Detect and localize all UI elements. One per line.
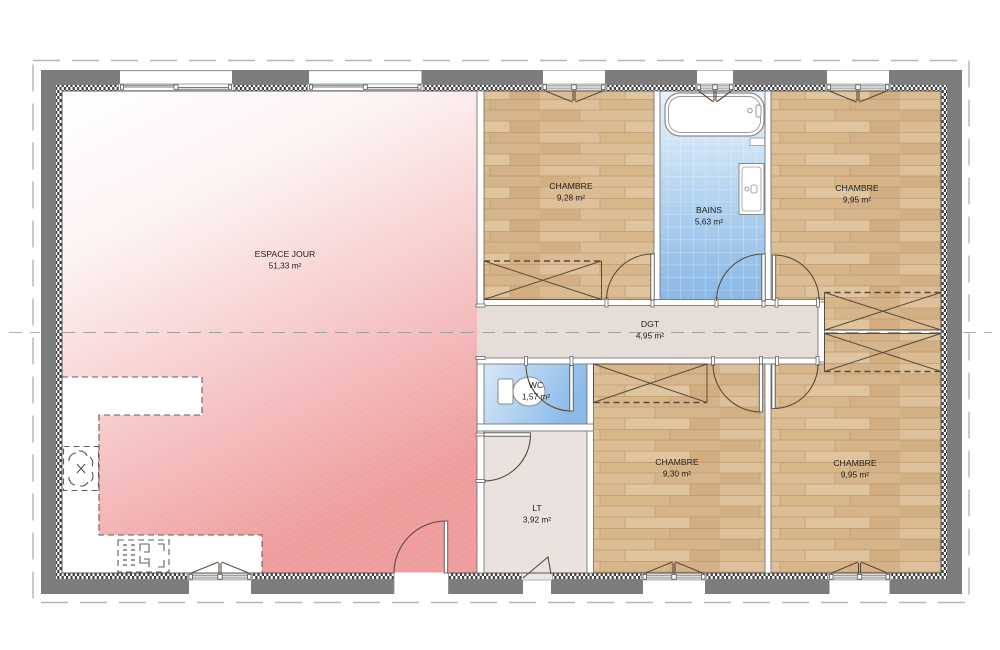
svg-text:9,30 m²: 9,30 m² [663,469,691,479]
svg-text:9,95 m²: 9,95 m² [841,470,869,480]
svg-text:5,63 m²: 5,63 m² [695,217,723,227]
svg-text:CHAMBRE: CHAMBRE [655,457,699,467]
svg-text:4,95 m²: 4,95 m² [636,331,664,341]
svg-text:BAINS: BAINS [696,205,722,215]
svg-text:WC: WC [529,380,543,390]
svg-text:9,28 m²: 9,28 m² [557,193,585,203]
svg-text:CHAMBRE: CHAMBRE [835,183,879,193]
svg-text:LT: LT [532,503,542,513]
svg-text:DGT: DGT [641,319,660,329]
svg-text:CHAMBRE: CHAMBRE [833,458,877,468]
svg-text:9,95 m²: 9,95 m² [843,195,871,205]
svg-text:51,33 m²: 51,33 m² [269,261,302,271]
svg-text:ESPACE JOUR: ESPACE JOUR [255,249,316,259]
svg-text:1,57 m²: 1,57 m² [522,392,550,402]
svg-text:3,92 m²: 3,92 m² [523,515,551,525]
svg-text:CHAMBRE: CHAMBRE [549,181,593,191]
